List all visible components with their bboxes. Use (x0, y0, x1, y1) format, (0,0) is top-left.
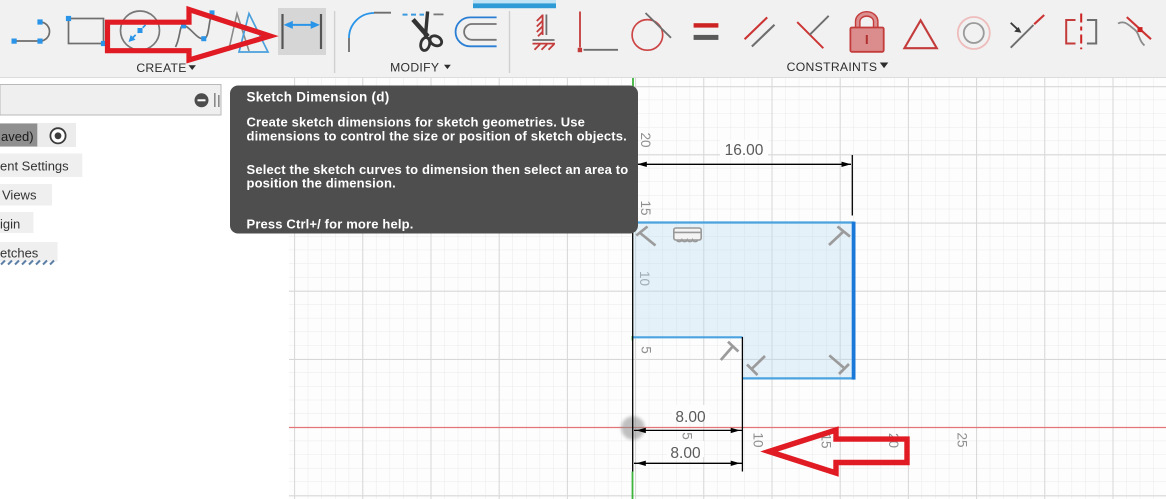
svg-text:CREATE: CREATE (136, 61, 186, 75)
svg-text:CONSTRAINTS: CONSTRAINTS (787, 60, 878, 74)
svg-text:Sketch Dimension (d): Sketch Dimension (d) (247, 90, 390, 105)
svg-text:8.00: 8.00 (670, 445, 701, 462)
svg-text:25: 25 (955, 432, 970, 447)
svg-text:20: 20 (638, 132, 653, 147)
svg-text:5: 5 (680, 432, 695, 440)
svg-text:10: 10 (751, 432, 766, 447)
svg-text:Create sketch dimensions for s: Create sketch dimensions for sketch geom… (247, 115, 586, 130)
svg-text:Press Ctrl+/ for more help.: Press Ctrl+/ for more help. (247, 216, 414, 231)
svg-text:Views: Views (2, 188, 37, 203)
svg-text:etches: etches (0, 246, 39, 261)
svg-text:15: 15 (638, 200, 653, 215)
svg-text:5: 5 (639, 346, 654, 354)
svg-text:dimensions to control the size: dimensions to control the size or positi… (247, 129, 627, 144)
svg-text:MODIFY: MODIFY (390, 61, 439, 75)
svg-text:8.00: 8.00 (675, 409, 706, 426)
svg-text:position the dimension.: position the dimension. (247, 176, 396, 191)
svg-text:16.00: 16.00 (725, 142, 764, 159)
svg-text:ent Settings: ent Settings (0, 159, 69, 174)
svg-text:aved): aved) (1, 129, 34, 144)
svg-text:igin: igin (0, 217, 20, 232)
